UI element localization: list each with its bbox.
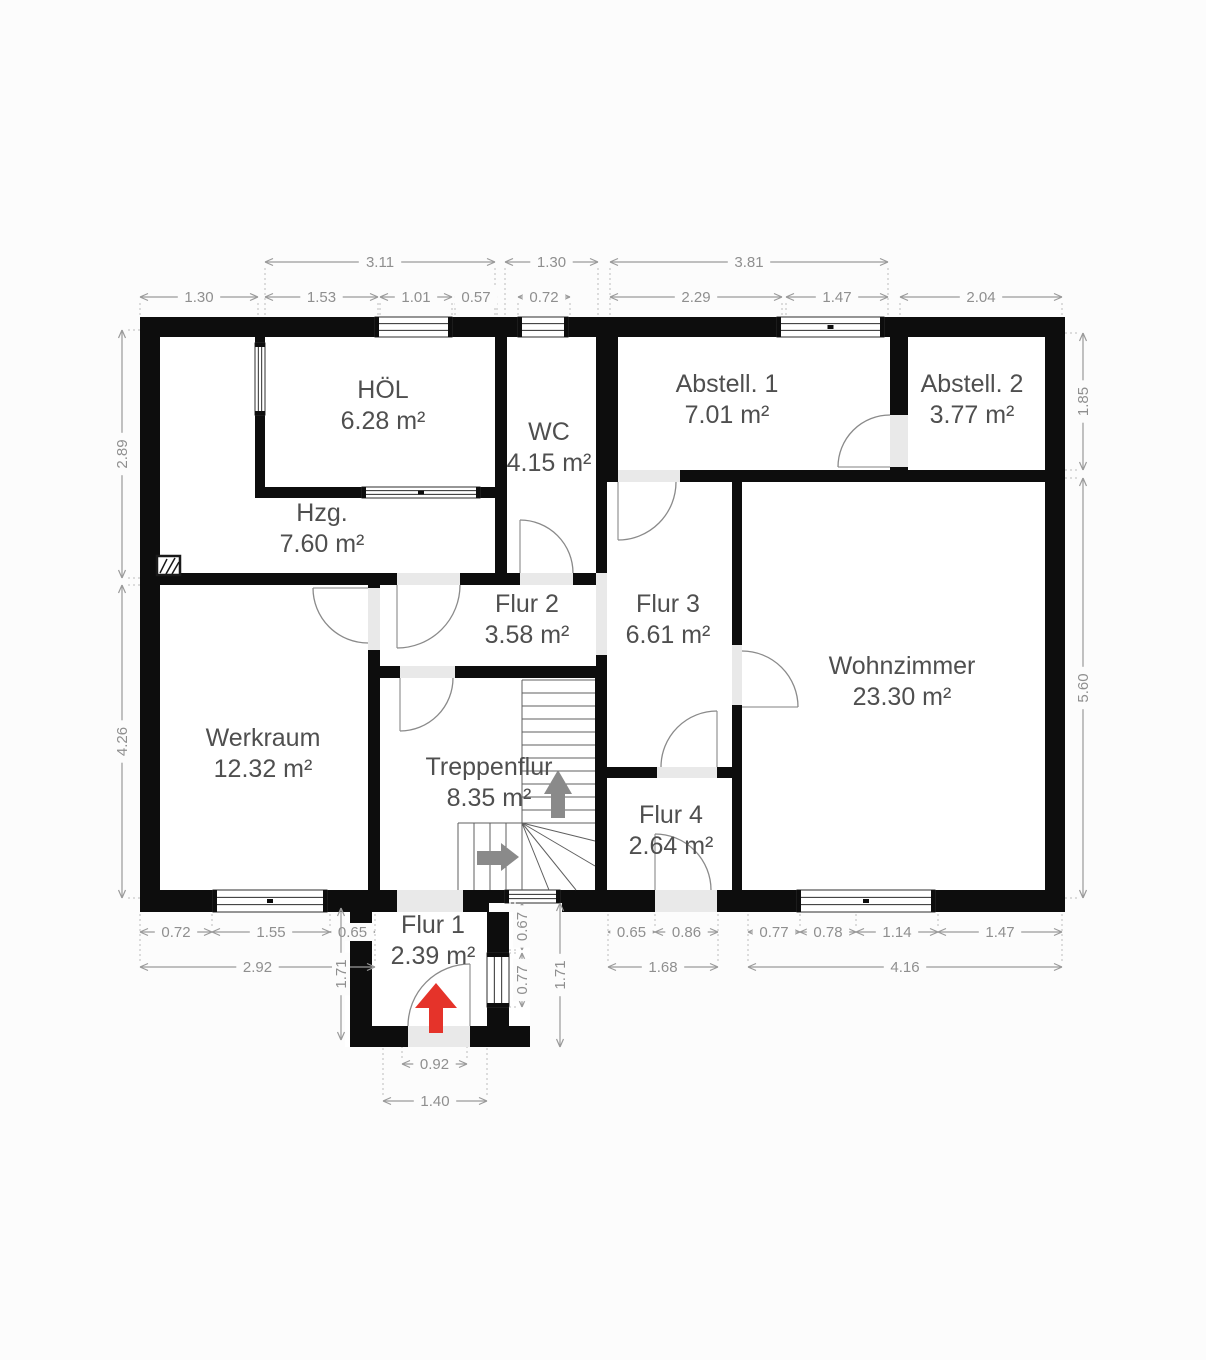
window-mullion	[863, 899, 869, 903]
window-frame	[375, 317, 452, 337]
door-threshold	[520, 573, 573, 585]
dimension: 1.01	[380, 288, 452, 317]
dimension: 2.89	[113, 330, 140, 578]
dimension: 1.85	[1065, 333, 1092, 470]
dimension-label: 0.72	[529, 289, 558, 306]
door-threshold	[397, 573, 460, 585]
dimension-label: 1.47	[985, 924, 1014, 941]
window-frame	[505, 890, 560, 903]
dimension-label: 4.26	[114, 727, 131, 756]
dimension-label: 2.89	[114, 439, 131, 468]
window	[518, 317, 568, 337]
wall	[495, 337, 507, 585]
dimension-label: 0.65	[617, 924, 646, 941]
dim-label-group: 1.85	[1074, 380, 1092, 422]
dimension-label: 1.71	[333, 959, 350, 988]
chimney-icon	[157, 556, 180, 575]
dimension-label: 0.65	[338, 924, 367, 941]
window-end-cap	[448, 317, 452, 337]
window	[213, 890, 327, 912]
dimension-label: 0.92	[420, 1056, 449, 1073]
door-threshold	[657, 767, 717, 778]
window-frame	[518, 317, 568, 337]
dimension-label: 1.85	[1075, 387, 1092, 416]
room-area: 7.60 m²	[280, 530, 365, 558]
wall	[1045, 317, 1065, 912]
dimension-label: 5.60	[1075, 673, 1092, 702]
dimension: 0.72	[518, 288, 570, 317]
wall	[140, 317, 160, 912]
wall	[596, 482, 607, 573]
dimension-label: 2.04	[966, 289, 995, 306]
dim-label-group: 5.60	[1074, 667, 1092, 709]
window-end-cap	[931, 890, 935, 912]
dimension: 4.26	[113, 585, 140, 898]
room-area: 8.35 m²	[447, 784, 532, 812]
dimension: 1.30	[505, 253, 598, 317]
window-end-cap	[564, 317, 568, 337]
room-name: Abstell. 2	[921, 370, 1024, 398]
window	[255, 343, 265, 415]
dim-label-group: 1.71	[332, 953, 350, 995]
dimension: 0.86	[655, 912, 718, 941]
dim-label-group: 0.77	[513, 959, 531, 1001]
arrow-shaft	[477, 851, 501, 865]
dimension-label: 0.86	[672, 924, 701, 941]
dimension: 1.55	[212, 912, 330, 941]
dimension-label: 1.47	[822, 289, 851, 306]
dimension: 3.81	[610, 253, 888, 317]
window-frame	[487, 953, 509, 1007]
room-name: HÖL	[357, 376, 409, 404]
window-end-cap	[375, 317, 379, 337]
arrow-shaft	[551, 793, 565, 818]
window-frame	[255, 343, 265, 415]
dimension: 3.11	[265, 253, 495, 317]
dimension-label: 3.11	[366, 254, 394, 271]
dimension: 4.16	[748, 912, 1062, 976]
dimension: 0.77	[748, 912, 800, 941]
window-end-cap	[213, 890, 217, 912]
room-name: Treppenflur	[426, 753, 553, 781]
dimension: 2.29	[610, 288, 782, 317]
room-name: Hzg.	[296, 499, 347, 527]
window-end-cap	[323, 890, 327, 912]
dimension-label: 0.78	[813, 924, 842, 941]
window-end-cap	[880, 317, 884, 337]
dimension: 0.57	[455, 288, 497, 317]
dimension: 1.68	[608, 912, 718, 976]
dimension-label: 0.77	[514, 965, 531, 994]
dimension-label: 1.71	[552, 960, 569, 989]
dimension-label: 1.40	[420, 1093, 449, 1110]
room-name: Flur 3	[636, 590, 700, 618]
dimension: 1.14	[856, 912, 938, 941]
wall	[487, 1007, 509, 1047]
dimension-label: 0.57	[461, 289, 490, 306]
wall	[595, 678, 607, 890]
dimension-label: 0.72	[161, 924, 190, 941]
room-name: Werkraum	[206, 724, 321, 752]
dimension: 1.71	[551, 903, 569, 1047]
dim-label-group: 2.89	[113, 433, 131, 475]
door-threshold	[397, 890, 463, 912]
room-name: Flur 2	[495, 590, 559, 618]
dimension: 1.53	[265, 288, 378, 317]
door-threshold	[596, 573, 607, 655]
dimension: 1.47	[938, 912, 1062, 941]
dimension-label: 1.68	[648, 959, 677, 976]
door-threshold	[732, 645, 742, 705]
window-end-cap	[255, 343, 265, 347]
dimension-label: 1.30	[184, 289, 213, 306]
room-name: Flur 4	[639, 801, 703, 829]
wall	[596, 337, 618, 482]
window-end-cap	[518, 317, 522, 337]
room-area: 4.15 m²	[507, 449, 592, 477]
floor-plan: 3.111.303.811.301.531.010.570.722.291.47…	[0, 0, 1206, 1360]
window	[375, 317, 452, 337]
room-area: 6.61 m²	[626, 621, 711, 649]
wall	[140, 317, 1065, 337]
dim-label-group: 1.71	[551, 954, 569, 996]
door-threshold	[400, 666, 455, 678]
door-threshold	[368, 588, 380, 650]
room-name: Abstell. 1	[676, 370, 779, 398]
window	[362, 487, 480, 498]
window-end-cap	[362, 487, 366, 498]
dimension: 1.30	[140, 288, 258, 317]
dimension-label: 1.53	[307, 289, 336, 306]
window-end-cap	[487, 1003, 509, 1007]
dim-label-group: 4.26	[113, 720, 131, 762]
dimension: 0.92	[402, 1047, 467, 1073]
window-mullion	[267, 899, 273, 903]
dimension-label: 0.77	[759, 924, 788, 941]
window-end-cap	[255, 411, 265, 415]
dimension-label: 2.92	[243, 959, 272, 976]
dimension: 1.47	[786, 288, 888, 317]
window-end-cap	[556, 890, 560, 903]
dimension-label: 1.14	[882, 924, 911, 941]
window-end-cap	[487, 953, 509, 957]
room-name: Wohnzimmer	[829, 652, 976, 680]
room-area: 23.30 m²	[853, 683, 952, 711]
room-area: 7.01 m²	[685, 401, 770, 429]
window-end-cap	[777, 317, 781, 337]
dimension-label: 3.81	[734, 254, 763, 271]
room-area: 6.28 m²	[341, 407, 426, 435]
window	[777, 317, 884, 337]
dimension-label: 4.16	[890, 959, 919, 976]
room-name: WC	[528, 418, 570, 446]
dimension-label: 1.55	[256, 924, 285, 941]
window	[505, 890, 560, 903]
window-end-cap	[797, 890, 801, 912]
dim-label-group: 0.67	[513, 905, 531, 947]
room-name: Flur 1	[401, 911, 465, 939]
dimension-label: 2.29	[681, 289, 710, 306]
room-area: 3.77 m²	[930, 401, 1015, 429]
room-area: 3.58 m²	[485, 621, 570, 649]
window	[797, 890, 935, 912]
room-area: 2.39 m²	[391, 942, 476, 970]
dimension-label: 1.01	[401, 289, 430, 306]
door-threshold	[890, 415, 908, 467]
dimension: 0.72	[140, 912, 212, 941]
room-area: 2.64 m²	[629, 832, 714, 860]
dimension-label: 1.30	[537, 254, 566, 271]
dimension: 0.65	[608, 912, 655, 941]
dimension: 5.60	[1065, 478, 1092, 898]
floor-plan-page: 3.111.303.811.301.531.010.570.722.291.47…	[0, 0, 1206, 1360]
window	[487, 953, 509, 1007]
dimension: 2.04	[900, 288, 1062, 317]
wall	[596, 655, 607, 678]
dimension: 0.78	[800, 912, 856, 941]
window-mullion	[828, 325, 834, 329]
door-threshold	[655, 890, 717, 912]
door-threshold	[618, 470, 680, 482]
room-area: 12.32 m²	[214, 755, 313, 783]
window-end-cap	[476, 487, 480, 498]
arrow-shaft	[429, 1007, 443, 1033]
window-end-cap	[505, 890, 509, 903]
window-mullion	[418, 491, 424, 495]
dimension-label: 0.67	[514, 912, 531, 941]
